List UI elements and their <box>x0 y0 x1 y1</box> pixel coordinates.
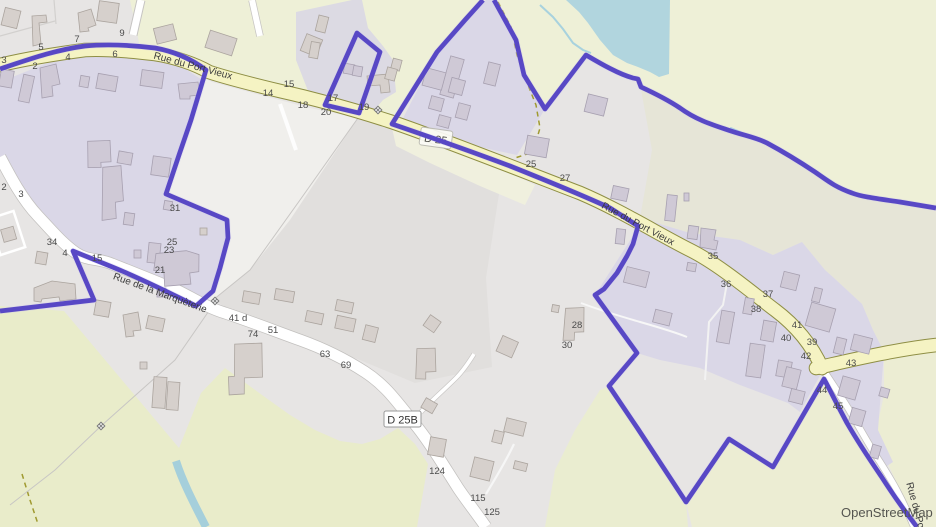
svg-text:35: 35 <box>708 251 719 262</box>
svg-text:36: 36 <box>721 279 732 290</box>
svg-text:OpenStreetMap: OpenStreetMap <box>841 505 933 520</box>
svg-text:31: 31 <box>170 203 181 214</box>
svg-text:3: 3 <box>1 55 6 66</box>
svg-text:3: 3 <box>18 189 23 200</box>
svg-text:2: 2 <box>1 182 6 193</box>
svg-text:27: 27 <box>560 173 571 184</box>
svg-text:5: 5 <box>38 42 43 53</box>
svg-text:115: 115 <box>470 493 485 504</box>
svg-text:17: 17 <box>328 93 339 104</box>
svg-text:124: 124 <box>429 466 445 477</box>
svg-text:20: 20 <box>321 107 332 118</box>
svg-text:37: 37 <box>763 289 774 300</box>
svg-text:30: 30 <box>562 340 573 351</box>
svg-text:63: 63 <box>320 349 331 360</box>
svg-text:14: 14 <box>263 88 274 99</box>
svg-text:15: 15 <box>284 79 295 90</box>
svg-text:51: 51 <box>268 325 279 336</box>
svg-text:2: 2 <box>32 61 37 72</box>
svg-text:34: 34 <box>47 237 58 248</box>
svg-text:45: 45 <box>833 401 844 412</box>
svg-text:4: 4 <box>65 52 70 63</box>
svg-text:6: 6 <box>112 49 117 60</box>
svg-text:28: 28 <box>572 320 583 331</box>
svg-text:74: 74 <box>248 329 259 340</box>
svg-text:41 d: 41 d <box>229 313 248 324</box>
svg-text:40: 40 <box>781 333 792 344</box>
svg-text:15: 15 <box>92 253 103 264</box>
svg-text:D 25B: D 25B <box>387 415 418 427</box>
svg-text:18: 18 <box>298 100 309 111</box>
svg-text:42: 42 <box>801 351 812 362</box>
svg-text:23: 23 <box>164 245 175 256</box>
svg-text:43: 43 <box>846 358 857 369</box>
svg-text:44: 44 <box>817 385 828 396</box>
svg-text:69: 69 <box>341 360 352 371</box>
svg-text:9: 9 <box>119 28 124 39</box>
svg-text:19: 19 <box>359 102 370 113</box>
svg-text:21: 21 <box>155 265 166 276</box>
svg-text:4: 4 <box>62 248 67 259</box>
svg-text:38: 38 <box>751 304 762 315</box>
svg-text:41: 41 <box>792 320 803 331</box>
svg-text:25: 25 <box>526 159 537 170</box>
svg-text:7: 7 <box>74 34 79 45</box>
svg-text:125: 125 <box>484 507 500 518</box>
svg-text:39: 39 <box>807 337 818 348</box>
